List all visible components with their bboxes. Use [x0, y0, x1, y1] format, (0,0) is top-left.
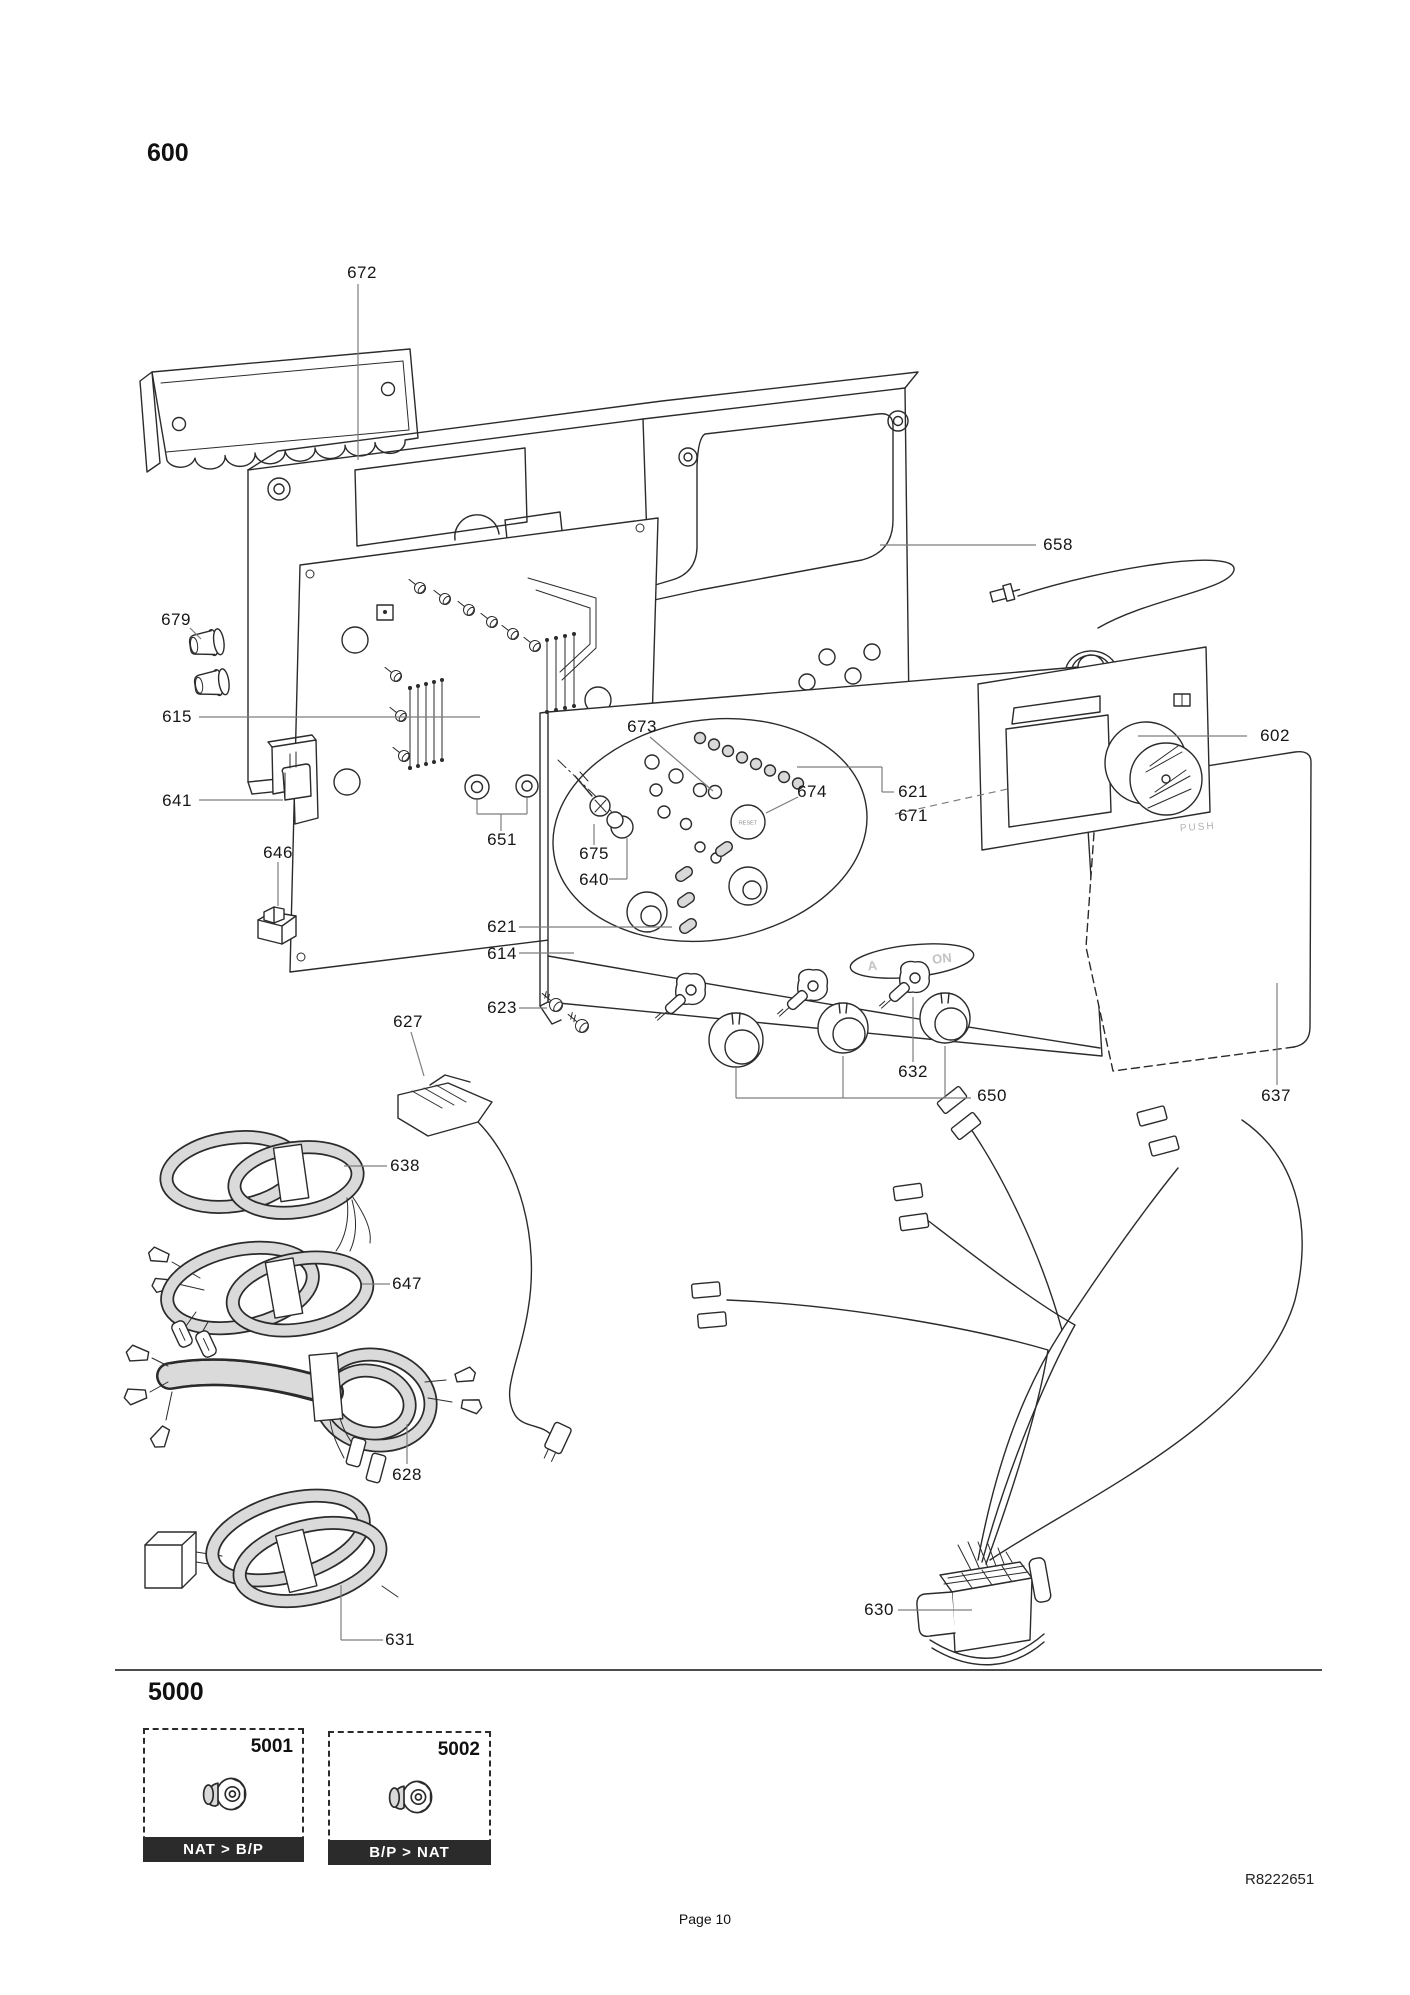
kit-number-5001: 5001	[251, 1736, 293, 1758]
part-label-638: 638	[390, 1156, 420, 1176]
part-label-615: 615	[162, 707, 192, 727]
part-labels-layer: 6726586796156026736416746216716466516756…	[0, 0, 1410, 1995]
part-label-632: 632	[898, 1062, 928, 1082]
part-label-628: 628	[392, 1465, 422, 1485]
section-600-title: 600	[147, 139, 189, 168]
part-label-641: 641	[162, 791, 192, 811]
page-number: Page 10	[679, 1911, 731, 1927]
part-label-623: 623	[487, 998, 517, 1018]
part-label-672: 672	[347, 263, 377, 283]
part-label-674: 674	[797, 782, 827, 802]
part-label-650: 650	[977, 1086, 1007, 1106]
kit-conversion-label-5002: B/P > NAT	[328, 1840, 491, 1865]
part-label-631: 631	[385, 1630, 415, 1650]
kit-conversion-label-5001: NAT > B/P	[143, 1837, 304, 1862]
part-label-679: 679	[161, 610, 191, 630]
part-label-640: 640	[579, 870, 609, 890]
kit-box-5001: 5001 NAT > B/P	[143, 1728, 304, 1862]
part-label-673: 673	[627, 717, 657, 737]
injector-icon	[381, 1773, 439, 1821]
part-label-621: 621	[487, 917, 517, 937]
parts-diagram-page: { "page": { "section1_title": "600", "se…	[0, 0, 1410, 1995]
kit-number-5002: 5002	[438, 1739, 480, 1761]
part-label-651: 651	[487, 830, 517, 850]
part-label-630: 630	[864, 1600, 894, 1620]
part-label-602: 602	[1260, 726, 1290, 746]
part-label-627: 627	[393, 1012, 423, 1032]
part-label-647: 647	[392, 1274, 422, 1294]
part-label-675: 675	[579, 844, 609, 864]
document-reference: R8222651	[1245, 1871, 1314, 1888]
part-label-671: 671	[898, 806, 928, 826]
kit-box-5002: 5002 B/P > NAT	[328, 1731, 491, 1865]
injector-icon	[195, 1770, 253, 1818]
part-label-646: 646	[263, 843, 293, 863]
part-label-637: 637	[1261, 1086, 1291, 1106]
part-label-614: 614	[487, 944, 517, 964]
part-label-621: 621	[898, 782, 928, 802]
part-label-658: 658	[1043, 535, 1073, 555]
section-5000-title: 5000	[148, 1678, 204, 1707]
